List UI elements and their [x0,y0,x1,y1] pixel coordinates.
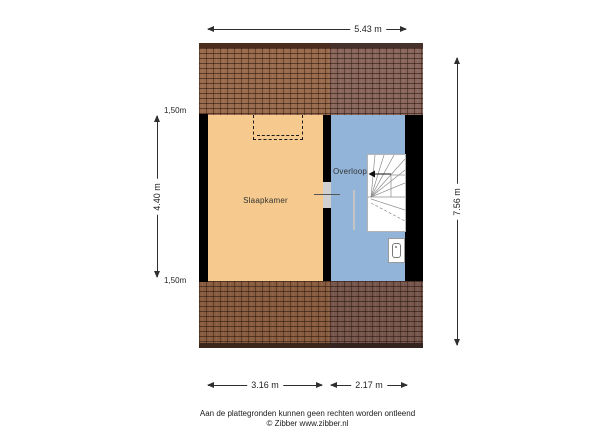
arrowhead-down-icon [454,339,460,346]
knee-wall-label-bottom: 1,50m [164,276,186,285]
landing-label: Overloop [333,167,367,176]
arrowhead-right-icon [316,382,323,388]
bedroom-label: Slaapkamer [208,196,323,205]
roof-section-bottom-left [199,281,330,348]
floor-plan-page: Slaapkamer Overloop 5.43 m 7.56 m 4.40 m… [0,0,615,436]
roof-section-bottom-right [330,281,423,348]
wall-right [405,115,423,281]
dimension-bottom-right: 2.17 m [331,380,407,390]
stair-direction-arrow-icon [369,171,392,178]
dimension-label: 3.16 m [247,380,283,390]
staircase-treads-icon [368,155,405,231]
arrowhead-down-icon [154,271,160,278]
roof-section-top-right [330,43,423,115]
roof-section-top-left [199,43,330,115]
dimension-label: 2.17 m [351,380,387,390]
dimension-label: 7.56 m [452,184,462,220]
arrowhead-left-icon [207,382,214,388]
dimension-label: 4.40 m [152,179,162,215]
dimension-bottom-left: 3.16 m [208,380,322,390]
arrowhead-right-icon [400,26,407,32]
arrowhead-left-icon [207,26,214,32]
door-opening [323,182,331,208]
skylight-outline [253,115,303,140]
stair-railing [353,190,355,230]
arrowhead-up-icon [154,115,160,122]
door-leaf-line [314,194,340,195]
staircase [367,154,406,232]
disclaimer-text: Aan de plattegronden kunnen geen rechten… [0,409,615,418]
dimension-label: 5.43 m [350,24,386,34]
arrowhead-left-icon [330,382,337,388]
credit-text: © Zibber www.zibber.nl [0,419,615,428]
dimension-top: 5.43 m [208,24,406,34]
vent-unit [388,238,405,263]
vent-unit-icon [392,243,401,258]
dimension-left: 4.40 m [152,116,162,277]
knee-wall-label-top: 1,50m [164,106,186,115]
arrowhead-up-icon [454,57,460,64]
dimension-right: 7.56 m [452,58,462,345]
arrowhead-right-icon [401,382,408,388]
wall-left [199,114,208,282]
